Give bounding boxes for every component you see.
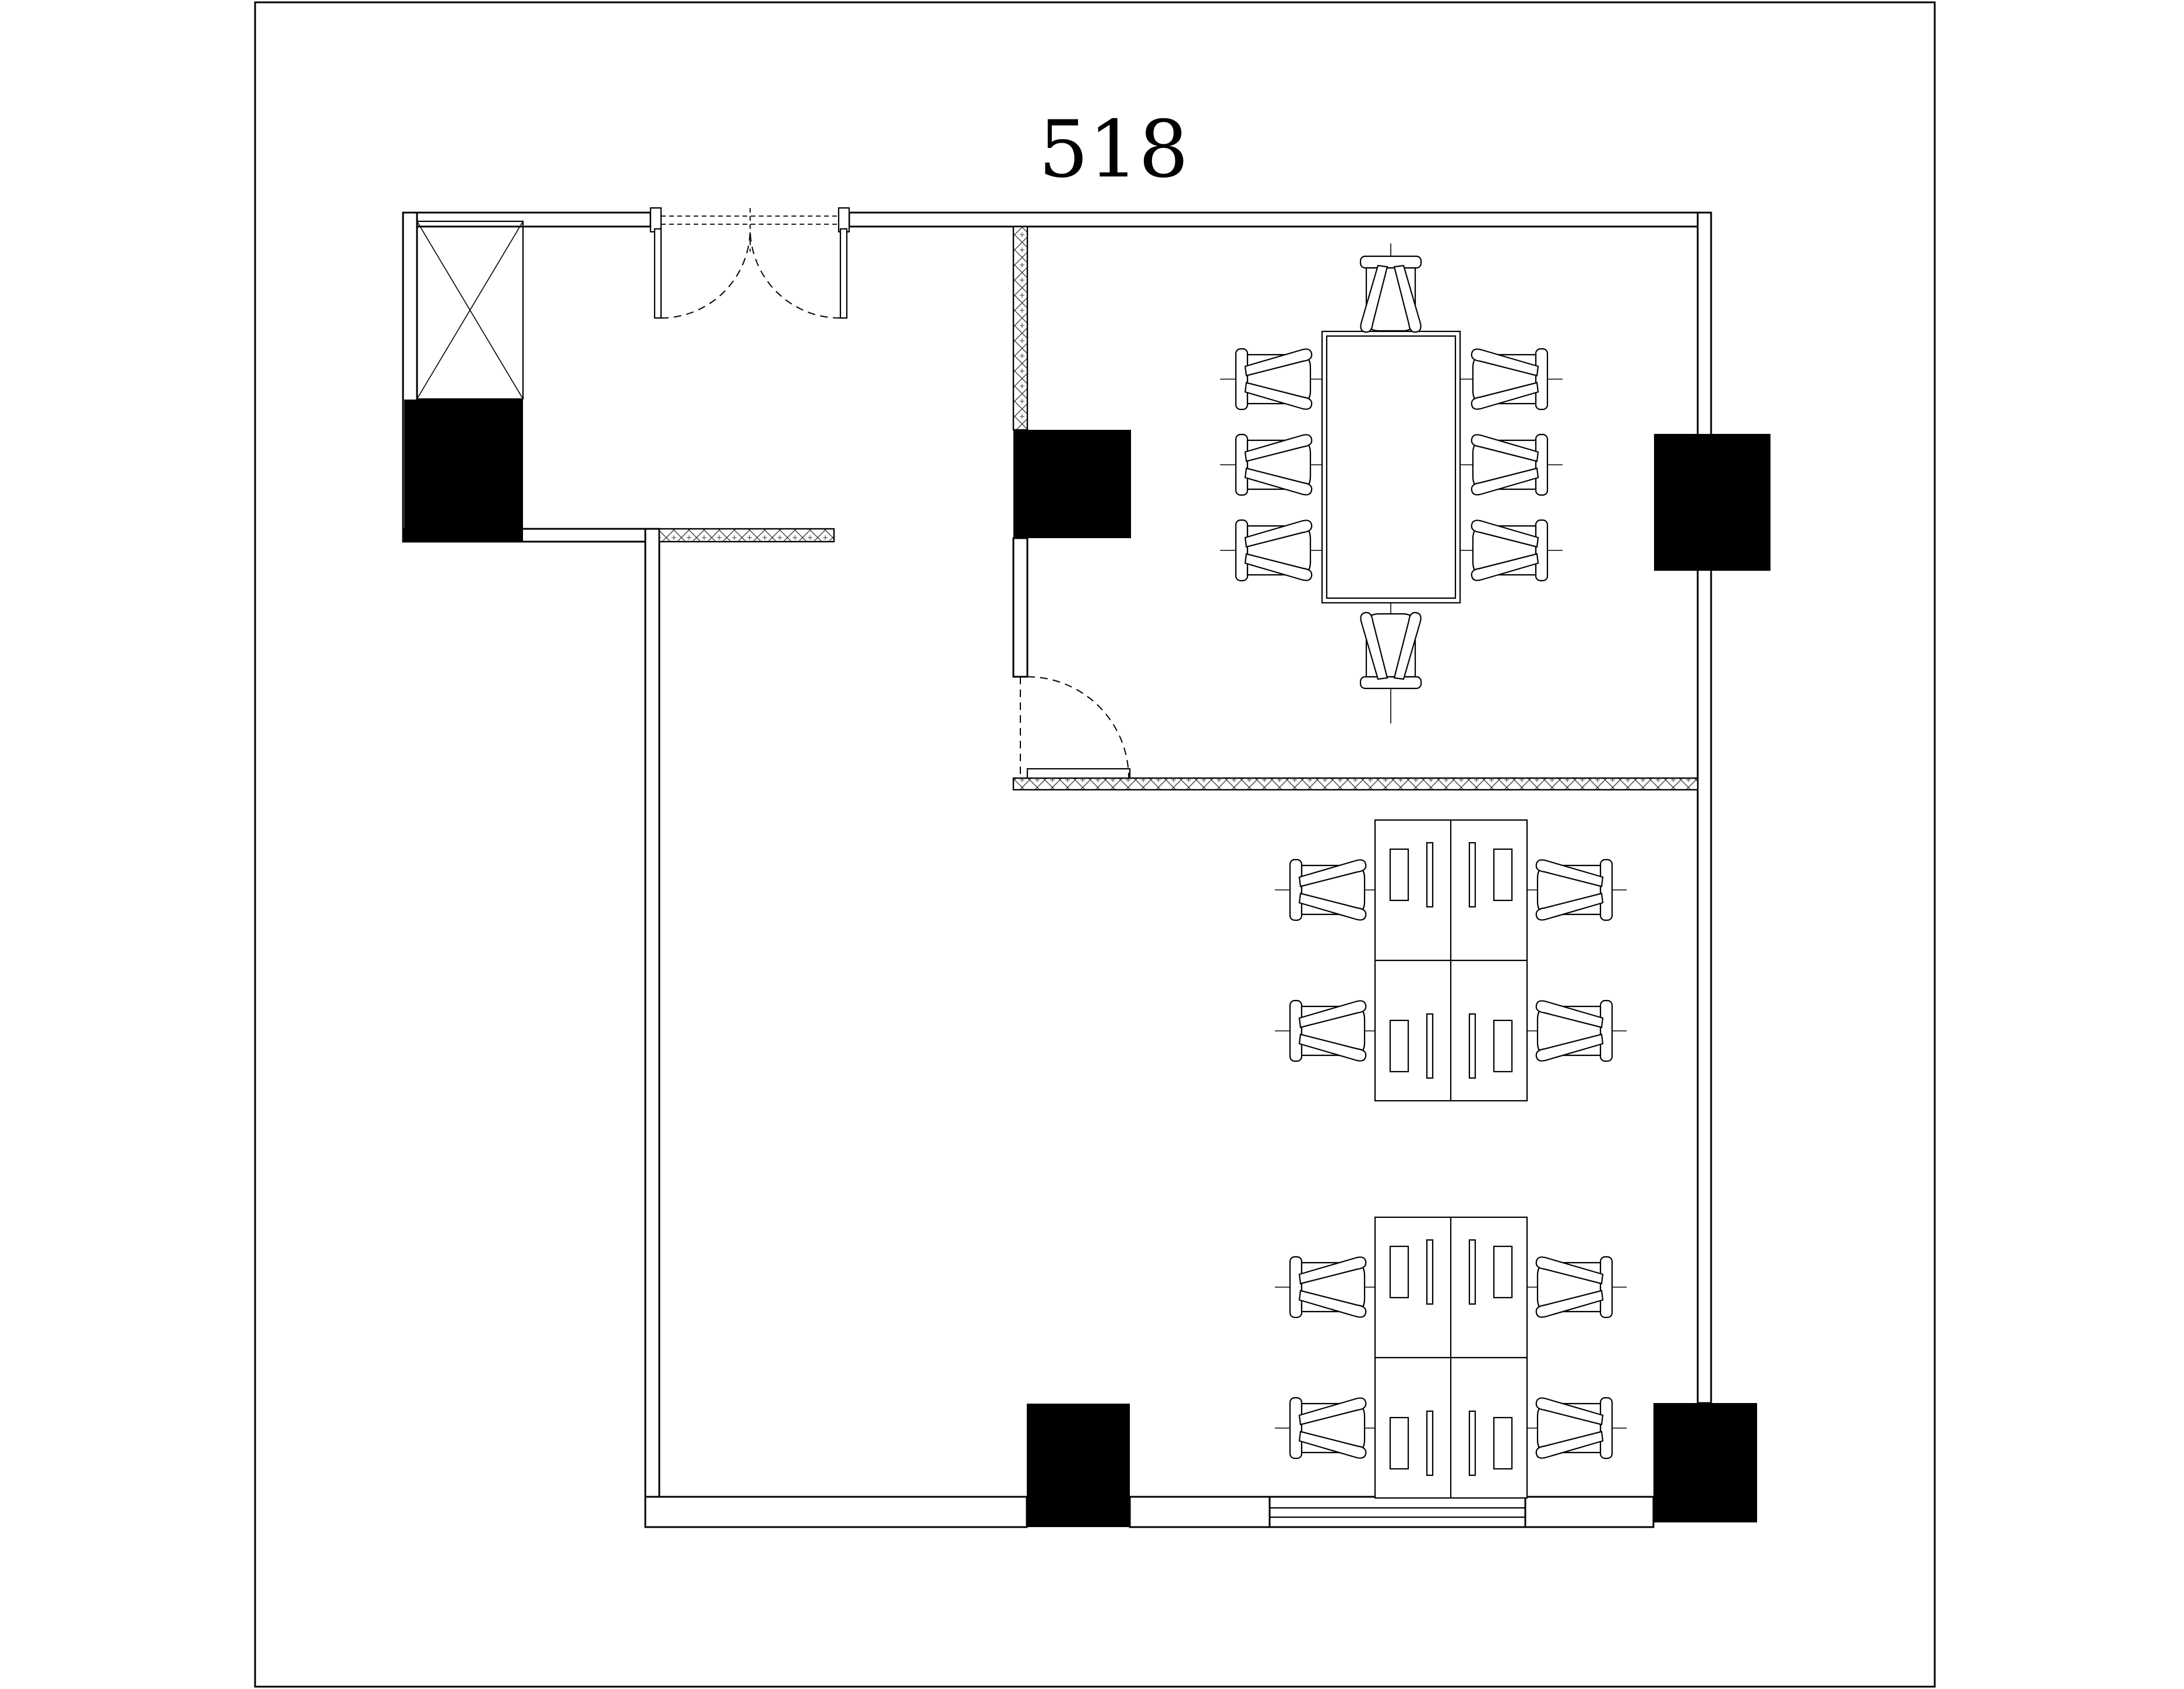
conference-chair-right: [1472, 434, 1547, 495]
top-wall-right: [849, 213, 1711, 227]
bottom-wall-right: [1525, 1497, 1653, 1527]
column-top-right: [1654, 434, 1770, 571]
meeting-west-hatched-wall: [1013, 227, 1027, 430]
conference-chair-foot: [1360, 613, 1421, 688]
floorplan-svg: 518: [0, 0, 2184, 1689]
cluster2-chair: [1536, 1257, 1612, 1317]
window-band: [1270, 1497, 1525, 1527]
cluster2-chair: [1536, 1398, 1612, 1458]
entrance-door-leaf-left: [655, 229, 661, 318]
conference-table-outer: [1322, 331, 1460, 603]
conference-chair-right: [1472, 520, 1547, 581]
cluster1-chair: [1290, 1001, 1366, 1061]
cluster1-chair: [1536, 1001, 1612, 1061]
conference-chair-right: [1472, 349, 1547, 409]
elements-root: 518: [255, 2, 1935, 1687]
cluster2-chair: [1290, 1398, 1366, 1458]
entrance-door-leaf-right: [840, 229, 847, 318]
floor-plan-page: 518: [0, 0, 2184, 1689]
meeting-south-hatched-wall: [1013, 778, 1698, 790]
entry-partition-hatched-wall: [659, 529, 834, 542]
conference-chair-left: [1236, 520, 1312, 581]
bottom-wall-mid: [1130, 1497, 1270, 1527]
column-bottom-middle: [1027, 1404, 1130, 1527]
column-top-left: [404, 400, 523, 542]
meeting-west-wall: [1013, 538, 1027, 677]
cluster1-chair: [1290, 860, 1366, 920]
entrance-door-jamb-right: [839, 208, 849, 232]
conference-chair-left: [1236, 349, 1312, 409]
conference-chair-head: [1360, 256, 1421, 332]
meeting-door-swing-arc: [1027, 677, 1129, 778]
entrance-door-jamb-left: [651, 208, 661, 232]
cluster2-chair: [1290, 1257, 1366, 1317]
drawing-title: 518: [1038, 104, 1189, 195]
meeting-door-leaf: [1027, 769, 1130, 778]
cluster1-chair: [1536, 860, 1612, 920]
office-left-wall: [645, 529, 659, 1527]
column-meeting-west: [1013, 430, 1131, 538]
top-wall-left: [404, 213, 651, 227]
conference-chair-left: [1236, 434, 1312, 495]
entrance-door-swing-arc-right: [750, 229, 840, 318]
entrance-door-swing-arc-left: [661, 229, 750, 318]
right-wall: [1698, 213, 1711, 1403]
bottom-wall-left: [645, 1497, 1027, 1527]
column-bottom-right: [1653, 1403, 1757, 1522]
